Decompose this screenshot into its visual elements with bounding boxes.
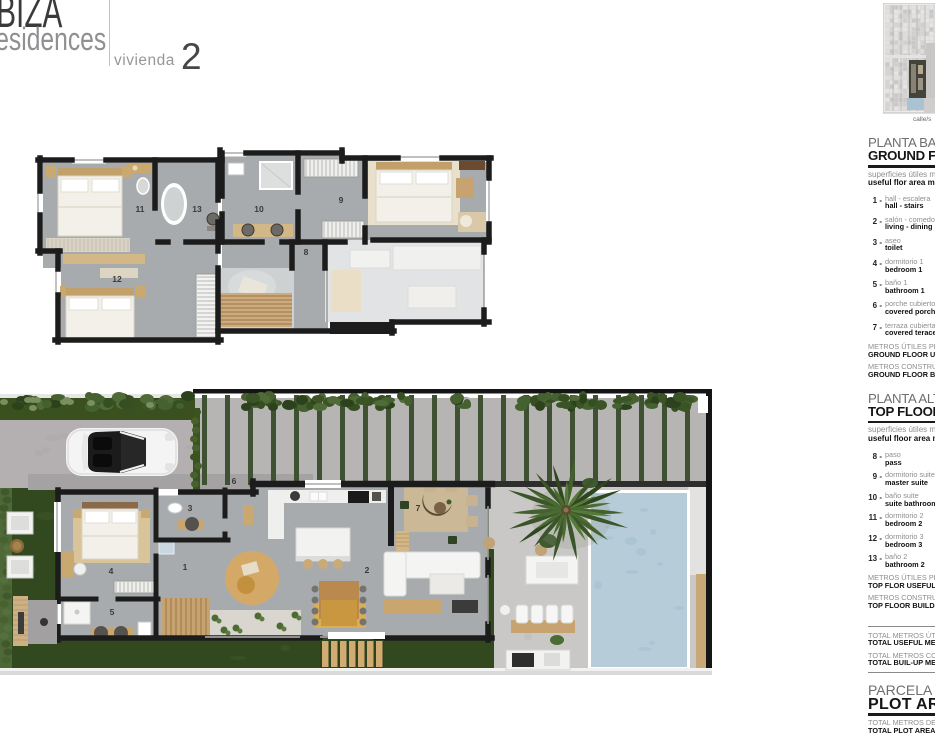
svg-text:5: 5 xyxy=(110,607,115,617)
svg-text:13: 13 xyxy=(192,204,202,214)
svg-text:3: 3 xyxy=(188,503,193,513)
svg-text:1: 1 xyxy=(183,562,188,572)
svg-text:7: 7 xyxy=(416,503,421,513)
svg-text:2: 2 xyxy=(365,565,370,575)
svg-text:8: 8 xyxy=(304,247,309,257)
svg-text:12: 12 xyxy=(112,274,122,284)
svg-text:4: 4 xyxy=(109,566,114,576)
svg-text:10: 10 xyxy=(254,204,264,214)
svg-text:11: 11 xyxy=(136,204,145,214)
svg-text:9: 9 xyxy=(339,195,344,205)
svg-text:6: 6 xyxy=(232,476,237,486)
